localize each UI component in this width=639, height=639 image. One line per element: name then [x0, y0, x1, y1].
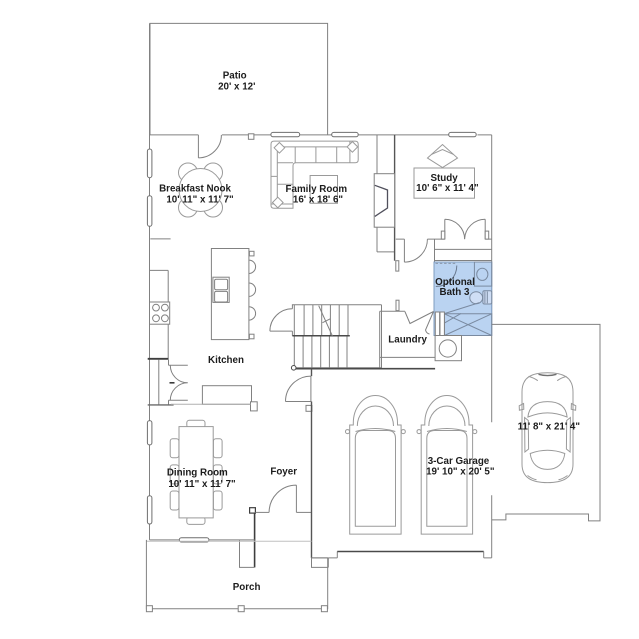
svg-text:20' x 12': 20' x 12' — [218, 82, 255, 93]
svg-text:3-Car Garage: 3-Car Garage — [428, 456, 490, 467]
svg-text:10' 11" x 11' 7": 10' 11" x 11' 7" — [166, 195, 233, 206]
svg-text:Optional: Optional — [435, 277, 475, 288]
svg-text:11' 8" x 21' 4": 11' 8" x 21' 4" — [518, 421, 580, 432]
svg-text:Breakfast Nook: Breakfast Nook — [159, 184, 231, 195]
svg-text:Bath 3: Bath 3 — [440, 287, 470, 298]
svg-text:Kitchen: Kitchen — [208, 355, 244, 366]
svg-text:10' 6" x 11' 4": 10' 6" x 11' 4" — [416, 183, 478, 194]
svg-text:Foyer: Foyer — [270, 466, 297, 477]
svg-text:Laundry: Laundry — [388, 334, 427, 345]
svg-text:Patio: Patio — [223, 71, 247, 82]
svg-text:Porch: Porch — [233, 582, 261, 593]
svg-text:10' 11" x 11' 7": 10' 11" x 11' 7" — [168, 479, 235, 490]
svg-text:19' 10" x 20' 5": 19' 10" x 20' 5" — [426, 467, 494, 478]
svg-text:Family Room: Family Room — [286, 184, 348, 195]
svg-text:Dining Room: Dining Room — [167, 468, 228, 479]
svg-text:16' x 18' 6": 16' x 18' 6" — [293, 195, 343, 206]
